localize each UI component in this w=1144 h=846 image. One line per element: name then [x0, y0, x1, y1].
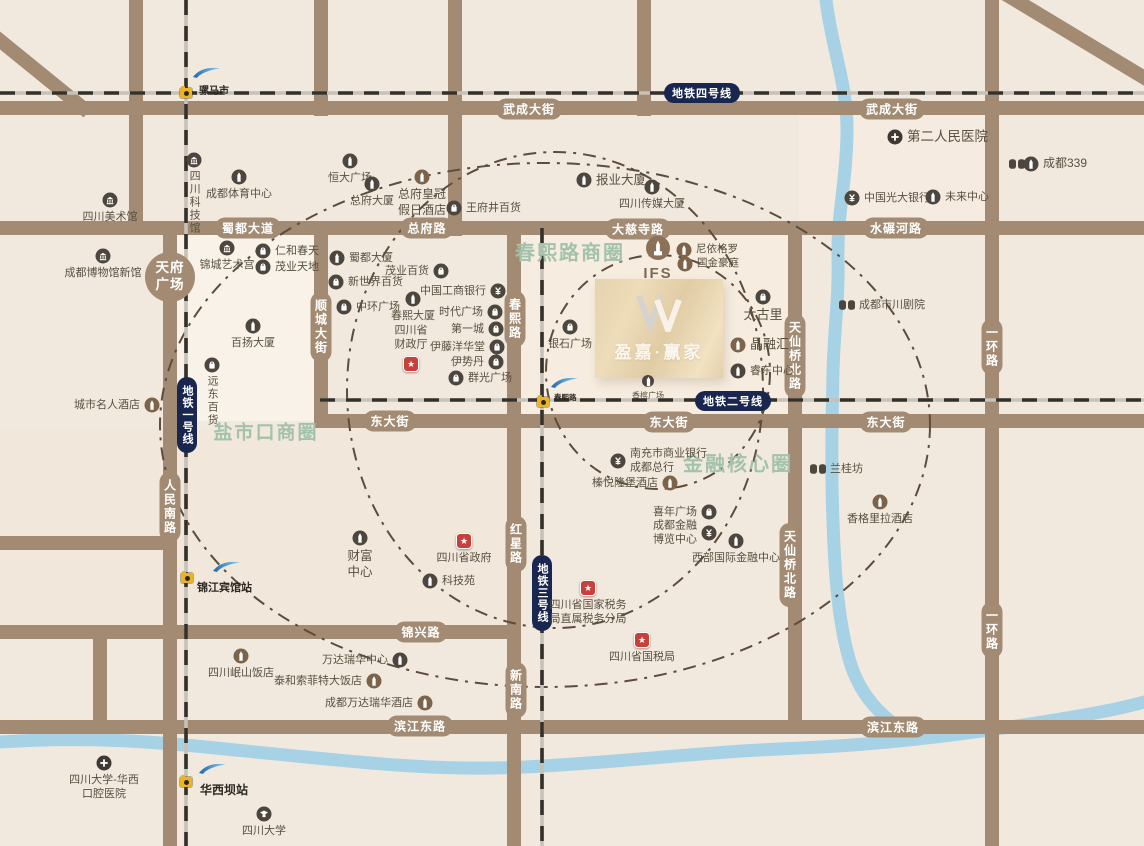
poi-label: 四川省国家税务 局直属税务分局 [550, 598, 627, 627]
shopping-bag-icon [337, 300, 352, 315]
university-icon [257, 807, 272, 822]
shopping-bag-icon [256, 244, 271, 259]
poi-label: 尼依格罗 [696, 243, 738, 257]
poi-label: 中环广场 [356, 300, 400, 314]
poi-label: 四川大学 [242, 824, 286, 838]
road-label: 天仙桥北路 [780, 523, 801, 607]
office-tower-icon [353, 531, 368, 546]
road-label: 武成大街 [496, 99, 562, 120]
metro-logo-wave-icon [212, 560, 242, 574]
office-tower-icon [577, 173, 592, 188]
bank-yen-icon [845, 191, 860, 206]
poi-label: 晶融汇 [750, 337, 789, 354]
shopping-bag-icon [489, 355, 504, 370]
poi-label: IFS [643, 264, 672, 284]
road-label: 顺城大街 [311, 292, 332, 362]
road-label: 一环路 [982, 602, 1003, 658]
poi-label: 香槟广场 [632, 391, 664, 401]
poi-label: 锦城艺术宫 [200, 258, 255, 272]
poi-label: 茂业百货 [385, 264, 429, 278]
poi-label: 睿东中心 [750, 364, 794, 378]
office-tower-icon [1024, 157, 1039, 172]
poi-label: 国金豪庭 [697, 257, 739, 271]
shopping-bag-icon [434, 264, 449, 279]
government-star-icon: ★ [403, 356, 419, 372]
office-tower-icon [642, 375, 654, 387]
shopping-bag-icon [563, 320, 578, 335]
road-label: 锦兴路 [394, 622, 447, 643]
poi-label: 太古里 [743, 307, 782, 324]
road-label: 红星路 [506, 516, 527, 572]
shopping-bag-icon [490, 340, 505, 355]
museum-icon [220, 241, 235, 256]
poi-label: 群光广场 [468, 371, 512, 385]
poi-label: 成都金融 博览中心 [653, 519, 697, 548]
office-tower-icon [365, 177, 380, 192]
poi-label: 中国光大银行 [864, 191, 930, 205]
government-star-icon: ★ [634, 632, 650, 648]
office-tower-icon [330, 251, 345, 266]
hotel-icon [678, 257, 693, 272]
road-label: 新南路 [506, 662, 527, 718]
shopping-bag-icon [447, 201, 462, 216]
poi-label: 第二人民医院 [907, 128, 988, 146]
road-label: 武成大街 [859, 99, 925, 120]
business-zone-label: 盐市口商圈 [213, 418, 318, 445]
tianfu-square-circle: 天府 广场 [145, 252, 195, 302]
poi-label: 远东百货 [205, 375, 219, 427]
government-star-icon: ★ [456, 533, 472, 549]
road-label: 总府路 [400, 218, 453, 239]
poi-label: 四川美术馆 [83, 210, 138, 224]
poi-label: 四川省国税局 [609, 650, 675, 664]
metro-logo-wave-icon [192, 66, 222, 80]
government-star-icon: ★ [580, 580, 596, 596]
poi-label: 城市名人酒店 [74, 398, 140, 412]
poi-label: 总府皇冠 假日酒店 [398, 187, 446, 218]
museum-icon [103, 193, 118, 208]
road-label: 滨江东路 [860, 717, 926, 738]
shopping-bag-icon [205, 358, 220, 373]
poi-label: 报业大厦 [596, 172, 646, 188]
metro-station-camera-icon [537, 397, 549, 407]
poi-label: 成都体育中心 [206, 187, 272, 201]
road-label: 天仙桥北路 [785, 314, 806, 398]
road-label: 水碾河路 [863, 218, 929, 239]
poi-label: 四川岷山饭店 [208, 666, 274, 680]
hospital-cross-icon [97, 756, 112, 771]
metro-station-camera-icon [180, 777, 192, 787]
metro-line-badge: 地铁二号线 [695, 391, 771, 411]
metro-logo-wave-icon [198, 762, 228, 776]
office-tower-icon [645, 180, 660, 195]
office-tower-icon [731, 364, 746, 379]
metro-line-badge: 地铁一号线 [177, 377, 197, 453]
bank-yen-icon [611, 454, 626, 469]
hotel-icon [145, 398, 160, 413]
poi-label: 喜年广场 [653, 505, 697, 519]
office-tower-icon [246, 319, 261, 334]
poi-label: 香格里拉酒店 [847, 512, 913, 526]
metro-station-label: 锦江宾馆站 [197, 579, 252, 595]
shopping-bag-icon [702, 505, 717, 520]
office-tower-icon [393, 653, 408, 668]
poi-label: 成都市川剧院 [859, 298, 925, 312]
office-tower-icon [926, 190, 941, 205]
poi-label: 成都博物馆新馆 [65, 266, 142, 280]
museum-icon [187, 153, 202, 168]
poi-label: 总府大厦 [350, 194, 394, 208]
map-base-layer [0, 0, 1144, 846]
theater-masks-icon [810, 464, 827, 475]
poi-label: 中国工商银行 [420, 284, 486, 298]
office-tower-icon [423, 574, 438, 589]
business-zone-label: 春熙路商圈 [515, 237, 625, 266]
metro-station-label: 骡马市 [199, 82, 229, 97]
hotel-icon [731, 338, 746, 353]
hotel-icon [415, 170, 430, 185]
poi-label: 时代广场 [439, 305, 483, 319]
hospital-cross-icon [888, 130, 903, 145]
road-label: 春熙路 [505, 291, 526, 347]
poi-label: 四川大学-华西 口腔医院 [69, 773, 139, 802]
shopping-bag-icon [256, 260, 271, 275]
poi-label: 未来中心 [945, 190, 989, 204]
metro-station-camera-icon [180, 88, 192, 98]
poi-label: 科技苑 [442, 574, 475, 588]
poi-label: 王府井百货 [466, 201, 521, 215]
poi-label: 第一城 [451, 322, 484, 336]
poi-label: 四川省政府 [437, 551, 492, 565]
ifs-tower-icon [646, 236, 670, 260]
metro-logo-wave-icon [550, 376, 580, 390]
road-label: 东大街 [642, 412, 695, 433]
hotel-icon [873, 495, 888, 510]
metro-station-camera-icon [181, 573, 193, 583]
hotel-icon [234, 649, 249, 664]
road [0, 34, 88, 112]
poi-label: 百扬大厦 [231, 336, 275, 350]
poi-label: 南充市商业银行 成都总行 [630, 447, 707, 476]
metro-line-badge: 地铁四号线 [664, 83, 740, 103]
office-tower-icon [343, 154, 358, 169]
poi-label: 仁和春天 [275, 244, 319, 258]
office-tower-icon [232, 170, 247, 185]
bank-yen-icon [702, 526, 717, 541]
poi-label: 兰桂坊 [830, 462, 863, 476]
road-label: 一环路 [982, 319, 1003, 375]
poi-label: 四川科技馆 [187, 170, 201, 235]
poi-label: 万达瑞华中心 [322, 653, 388, 667]
metro-station-label: 春熙路 [554, 392, 577, 403]
bank-yen-icon [491, 284, 506, 299]
road-label: 东大街 [363, 411, 416, 432]
poi-label: 泰和索菲特大饭店 [274, 674, 362, 688]
road-label: 蜀都大道 [215, 218, 281, 239]
road-label: 东大街 [859, 412, 912, 433]
poi-label: 四川传媒大厦 [619, 197, 685, 211]
shopping-bag-icon [756, 290, 771, 305]
poi-label: 伊势丹 [451, 355, 484, 369]
poi-label: 茂业天地 [275, 260, 319, 274]
poi-label: 银石广场 [548, 337, 592, 351]
metro-station-label: 华西坝站 [200, 781, 248, 798]
poi-label: 成都339 [1043, 156, 1087, 172]
hotel-icon [677, 243, 692, 258]
road-label: 人民南路 [160, 472, 181, 542]
office-tower-icon [406, 292, 421, 307]
office-tower-icon [729, 534, 744, 549]
hotel-icon [367, 674, 382, 689]
shopping-bag-icon [449, 371, 464, 386]
shopping-bag-icon [488, 305, 503, 320]
hotel-icon [663, 476, 678, 491]
museum-icon [96, 249, 111, 264]
poi-label: 榛悦隆堡酒店 [592, 476, 658, 490]
poi-label: 四川省 财政厅 [395, 323, 428, 352]
road [1002, 0, 1144, 80]
shopping-bag-icon [489, 322, 504, 337]
poi-label: 财富 中心 [347, 548, 372, 581]
poi-label: 西部国际金融中心 [692, 551, 780, 565]
chengdu-location-map: 盈嘉·赢家 武成大街武成大街蜀都大道总府路大慈寺路水碾河路东大街东大街东大街锦兴… [0, 0, 1144, 846]
theater-masks-icon [839, 300, 856, 311]
poi-label: 伊藤洋华堂 [430, 340, 485, 354]
shopping-bag-icon [329, 275, 344, 290]
road-label: 滨江东路 [387, 716, 453, 737]
hotel-icon [418, 696, 433, 711]
poi-label: 成都万达瑞华酒店 [325, 696, 413, 710]
